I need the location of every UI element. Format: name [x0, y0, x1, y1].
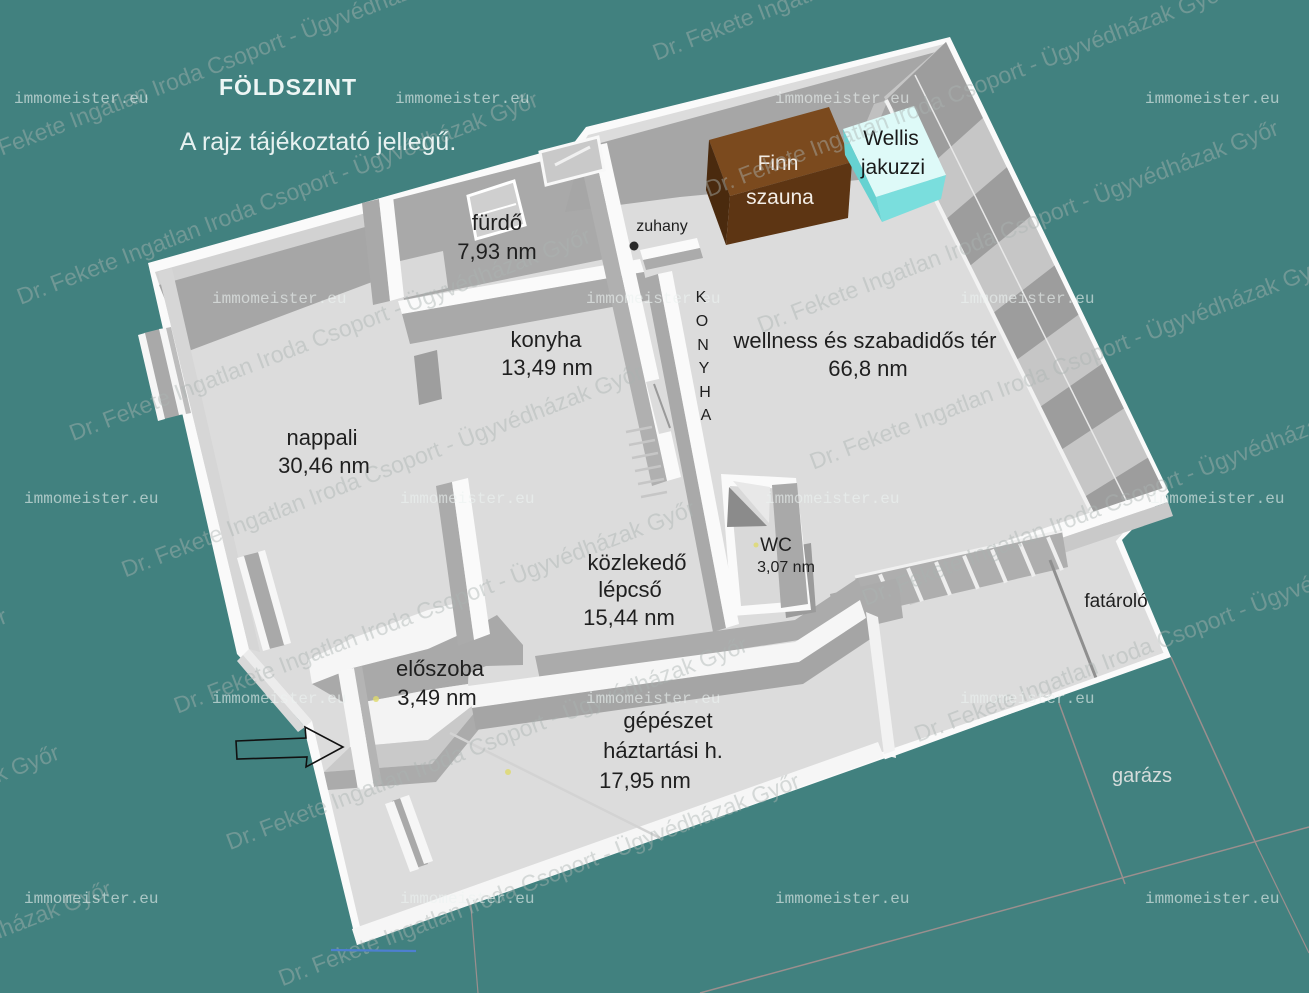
- svg-text:immomeister.eu: immomeister.eu: [1145, 890, 1279, 908]
- svg-text:fatároló: fatároló: [1084, 591, 1147, 612]
- svg-text:lépcső: lépcső: [598, 577, 662, 602]
- svg-text:közlekedő: közlekedő: [587, 550, 686, 575]
- svg-text:konyha: konyha: [511, 327, 583, 352]
- svg-text:7,93 nm: 7,93 nm: [457, 239, 537, 264]
- svg-text:Y: Y: [699, 360, 710, 377]
- svg-text:H: H: [699, 384, 711, 401]
- svg-text:17,95 nm: 17,95 nm: [599, 768, 691, 793]
- svg-text:A: A: [701, 407, 712, 424]
- svg-text:immomeister.eu: immomeister.eu: [24, 890, 158, 908]
- svg-text:nappali: nappali: [287, 425, 358, 450]
- svg-text:előszoba: előszoba: [396, 656, 485, 681]
- svg-text:wellness és szabadidős tér: wellness és szabadidős tér: [733, 328, 997, 353]
- svg-text:O: O: [696, 313, 708, 330]
- svg-text:66,8 nm: 66,8 nm: [828, 356, 908, 381]
- svg-text:A rajz tájékoztató jellegű.: A rajz tájékoztató jellegű.: [180, 128, 457, 156]
- svg-text:immomeister.eu: immomeister.eu: [24, 490, 158, 508]
- svg-text:immomeister.eu: immomeister.eu: [14, 90, 148, 108]
- svg-text:immomeister.eu: immomeister.eu: [775, 890, 909, 908]
- svg-text:3,07 nm: 3,07 nm: [757, 559, 815, 576]
- svg-text:immomeister.eu: immomeister.eu: [395, 90, 529, 108]
- svg-text:13,49 nm: 13,49 nm: [501, 355, 593, 380]
- svg-text:N: N: [697, 337, 709, 354]
- svg-text:immomeister.eu: immomeister.eu: [960, 690, 1094, 708]
- svg-text:immomeister.eu: immomeister.eu: [775, 90, 909, 108]
- svg-text:gépészet: gépészet: [623, 708, 712, 733]
- svg-text:háztartási h.: háztartási h.: [603, 738, 723, 763]
- svg-text:szauna: szauna: [746, 186, 814, 209]
- svg-text:immomeister.eu: immomeister.eu: [1150, 490, 1284, 508]
- svg-text:jakuzzi: jakuzzi: [860, 156, 925, 179]
- svg-text:immomeister.eu: immomeister.eu: [400, 890, 534, 908]
- svg-text:15,44 nm: 15,44 nm: [583, 605, 675, 630]
- svg-text:WC: WC: [760, 535, 792, 556]
- svg-text:garázs: garázs: [1112, 765, 1172, 787]
- svg-text:FÖLDSZINT: FÖLDSZINT: [219, 74, 357, 100]
- svg-text:3,49 nm: 3,49 nm: [397, 685, 477, 710]
- svg-text:immomeister.eu: immomeister.eu: [400, 490, 534, 508]
- svg-text:immomeister.eu: immomeister.eu: [212, 290, 346, 308]
- svg-text:immomeister.eu: immomeister.eu: [765, 490, 899, 508]
- svg-text:immomeister.eu: immomeister.eu: [1145, 90, 1279, 108]
- svg-text:fürdő: fürdő: [472, 210, 522, 235]
- svg-text:immomeister.eu: immomeister.eu: [960, 290, 1094, 308]
- svg-text:immomeister.eu: immomeister.eu: [586, 690, 720, 708]
- svg-text:zuhany: zuhany: [636, 218, 688, 235]
- svg-text:immomeister.eu: immomeister.eu: [212, 690, 346, 708]
- svg-text:30,46 nm: 30,46 nm: [278, 453, 370, 478]
- svg-text:K: K: [696, 289, 707, 306]
